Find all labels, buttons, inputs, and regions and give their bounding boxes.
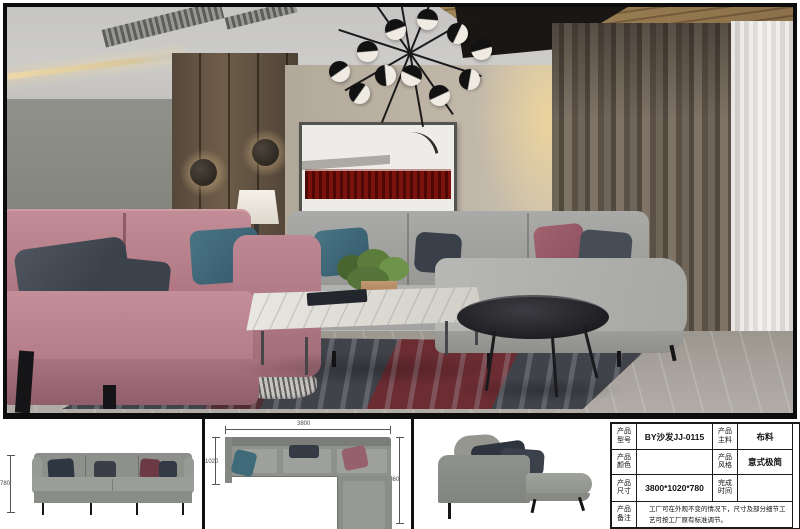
product-sheet: 780 380 [0,0,800,529]
pillow [289,445,319,458]
spec-table: 产品型号 BY沙发JJ-0115 产品主料 布料 产品颜色 产品风格 意式极简 … [610,422,800,529]
width-dimension-line [225,429,391,430]
front-view-drawing: 780 [0,419,202,529]
marble-coffee-table [239,255,487,381]
spec-value-remark: 工厂可在外观不变的情况下，尺寸及部分细节工艺可按工厂原有标准调节。 [637,502,793,528]
drawings-strip: 780 380 [0,419,800,529]
spec-label: 产品尺寸 [612,475,637,502]
spec-value-model: BY沙发JJ-0115 [637,424,713,450]
spec-label: 产品型号 [612,424,637,450]
chaise-side [526,473,592,495]
side-view-drawing [414,419,607,529]
height-dimension-label: 780 [0,481,10,487]
height-dimension-line [10,455,11,513]
sputnik-chandelier [325,9,495,109]
spec-value-size: 3800*1020*780 [637,475,713,502]
sofa-side-render [432,433,594,519]
spec-label: 产品风格 [713,450,738,475]
spec-value-style: 意式极简 [738,450,793,475]
round-coffee-table [457,289,617,401]
living-room-photo [3,3,797,419]
width-dimension-label: 3800 [297,421,310,427]
depth-dimension-label: 1020 [205,459,218,465]
art-branch [408,128,438,159]
spec-label: 产品主料 [713,424,738,450]
armrest-side [438,455,530,503]
sheer-curtain [731,21,793,373]
wall-lamp-icon [190,159,217,186]
spec-value-material: 布料 [738,424,793,450]
spec-value-time [738,475,793,502]
spec-label: 完成时间 [713,475,738,502]
spec-label: 产品备注 [612,502,637,528]
top-view-drawing: 3800 1020 1860 [205,419,411,529]
sofa-front-render [32,453,194,517]
wall-lamp-icon [252,139,279,166]
sofa-top-render [225,437,391,525]
spec-value-color [637,450,713,475]
sofa-seat [3,291,253,365]
spec-label: 产品颜色 [612,450,637,475]
